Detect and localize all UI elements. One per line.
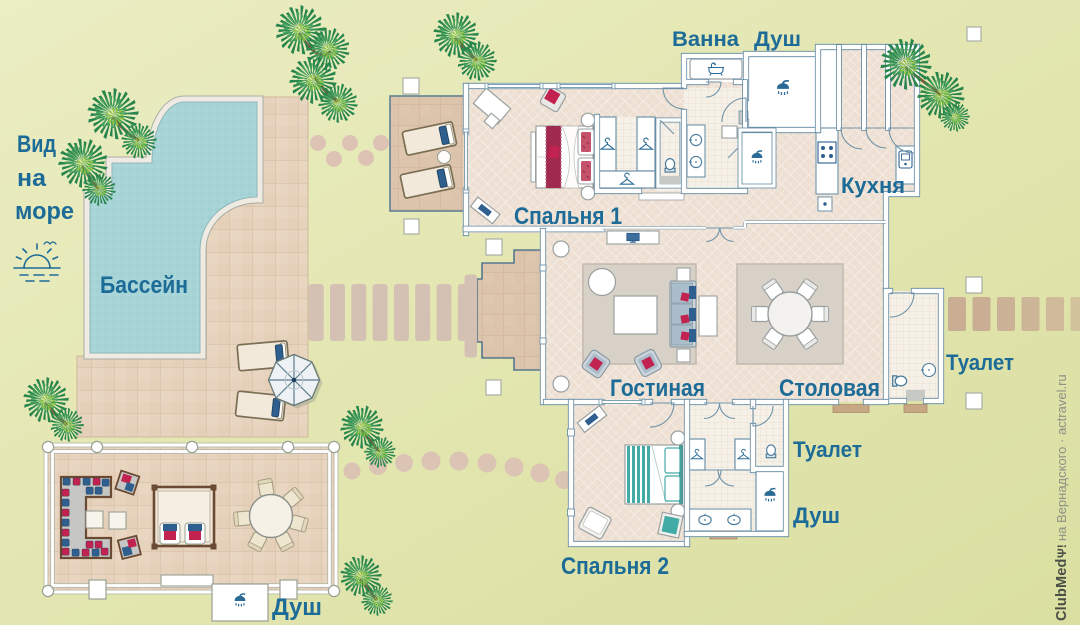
svg-text:Душ: Душ xyxy=(272,594,322,621)
svg-text:на Вернадского · actravel.ru: на Вернадского · actravel.ru xyxy=(1054,374,1069,541)
svg-text:Туалет: Туалет xyxy=(946,350,1014,375)
svg-text:море: море xyxy=(15,198,74,225)
svg-text:Гостиная: Гостиная xyxy=(610,375,705,402)
svg-text:Спальня 1: Спальня 1 xyxy=(514,203,622,230)
svg-text:Туалет: Туалет xyxy=(793,437,862,462)
svg-text:Кухня: Кухня xyxy=(841,173,905,198)
svg-text:на: на xyxy=(17,165,47,192)
svg-text:Душ: Душ xyxy=(793,503,840,528)
svg-text:Ψ!: Ψ! xyxy=(1055,544,1069,558)
svg-text:Ванна: Ванна xyxy=(672,27,740,51)
svg-text:Бассейн: Бассейн xyxy=(100,272,188,299)
svg-text:Душ: Душ xyxy=(754,27,801,51)
svg-text:Вид: Вид xyxy=(17,131,56,158)
svg-text:Столовая: Столовая xyxy=(779,375,880,402)
svg-text:Спальня 2: Спальня 2 xyxy=(561,553,669,580)
svg-text:ClubMed: ClubMed xyxy=(1054,558,1070,621)
